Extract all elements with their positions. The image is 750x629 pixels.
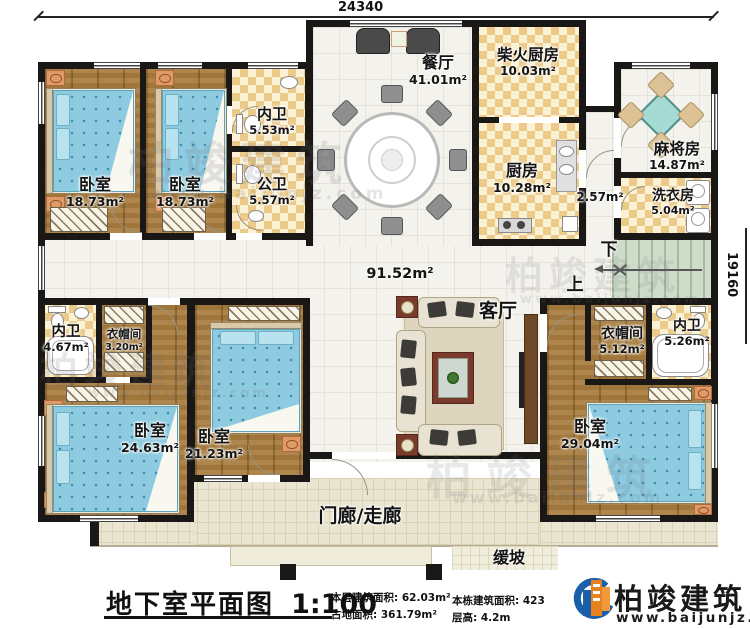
- stat-value: 423: [523, 595, 545, 607]
- bed-headboard: [210, 322, 302, 329]
- pillow: [258, 331, 294, 345]
- room-label-bath: 内卫 5.53m²: [240, 106, 304, 137]
- floor-plan: 柏竣建筑 www.baijunjz.com 柏竣建筑 www.baijunjz.…: [0, 0, 750, 629]
- nightstand: [694, 504, 712, 515]
- wardrobe: [228, 306, 300, 321]
- window: [80, 515, 138, 522]
- pillow: [56, 412, 70, 446]
- kitchen-sink: [559, 146, 574, 157]
- window: [596, 515, 660, 522]
- room-area: 10.28m²: [487, 181, 557, 196]
- logo: 柏竣建筑 www.baijunjz.com: [570, 574, 746, 629]
- door-gap: [579, 150, 586, 188]
- wall: [711, 240, 718, 298]
- pillow: [688, 452, 702, 490]
- dining-table-center: [381, 149, 403, 171]
- stat-row: 占地面积: 361.79m²: [331, 607, 451, 624]
- stat-value: 62.03m²: [402, 592, 451, 604]
- bed-headboard: [46, 404, 53, 514]
- nightstand: [155, 70, 174, 86]
- ramp-label: 缓坡: [486, 549, 532, 568]
- plant: [447, 372, 459, 384]
- room-name: 内卫: [656, 318, 718, 335]
- room-label-dining: 餐厅 41.01m²: [400, 54, 476, 88]
- dining-chair: [406, 28, 440, 54]
- room-name: 洗衣房: [638, 188, 708, 205]
- wall: [621, 172, 711, 178]
- room-area: 5.26m²: [656, 335, 718, 349]
- kitchen-cabinet: [562, 216, 578, 232]
- door-gap: [110, 233, 142, 240]
- room-name: 公卫: [240, 176, 304, 194]
- porch-label: 门廊/走廊: [300, 505, 420, 527]
- room-label-mahjong: 麻将房 14.87m²: [634, 140, 720, 172]
- stove-burner: [503, 221, 511, 229]
- corridor-area-label: 2.57m²: [570, 190, 630, 204]
- wall-stub: [479, 117, 499, 123]
- door-gap: [540, 314, 547, 352]
- wardrobe: [50, 207, 108, 232]
- room-area: 5.57m²: [240, 194, 304, 208]
- wall: [585, 379, 711, 385]
- stairs-text: 上: [564, 275, 586, 295]
- stove-burner: [517, 221, 525, 229]
- porch-column: [426, 564, 442, 580]
- toilet-tank: [690, 306, 706, 313]
- room-label-bath: 内卫 5.26m²: [656, 318, 718, 348]
- stats-col2: 本栋建筑面积: 423 层高: 4.2m: [452, 593, 545, 627]
- stairs-down-label: 下: [598, 240, 620, 260]
- stat-row: 本栋建筑面积: 423: [452, 593, 545, 610]
- room-name: 柴火厨房: [483, 46, 573, 64]
- stairs-text: 下: [598, 240, 620, 260]
- porch-column: [280, 564, 296, 580]
- room-name: 麻将房: [634, 140, 720, 158]
- room-name: 缓坡: [486, 549, 532, 568]
- tv-cabinet: [524, 314, 538, 444]
- room-label-bath: 公卫 5.57m²: [240, 176, 304, 207]
- pillow: [688, 410, 702, 448]
- nightstand: [282, 436, 301, 452]
- room-area: 4.67m²: [40, 341, 92, 355]
- tv: [519, 352, 524, 408]
- dim-right-line: [745, 228, 747, 344]
- watermark-site: www.baijunjz.com: [520, 292, 701, 307]
- room-area: 18.73m²: [55, 195, 135, 210]
- room-name: 卧室: [545, 418, 635, 437]
- wardrobe: [594, 360, 644, 377]
- stairs-up-label: 上: [564, 275, 586, 295]
- porch-strip-left: [90, 520, 194, 546]
- stat-value: 361.79m²: [381, 609, 437, 621]
- room-area: 5.04m²: [638, 205, 708, 218]
- sink: [248, 210, 264, 222]
- room-name: 厨房: [487, 162, 557, 181]
- door-gap: [248, 475, 280, 482]
- room-area: 2.57m²: [570, 190, 630, 204]
- stat-label: 占地面积:: [331, 609, 377, 621]
- window: [248, 62, 298, 69]
- room-name: 卧室: [145, 176, 225, 195]
- room-area: 5.12m²: [580, 343, 664, 357]
- door-gap: [236, 233, 262, 240]
- dim-top-text: 24340: [338, 0, 383, 15]
- door-gap: [614, 118, 621, 158]
- window: [711, 404, 718, 468]
- stat-row: 本层建筑面积: 62.03m²: [331, 590, 451, 607]
- dim-right-text: 19160: [724, 252, 739, 297]
- room-area: 91.52m²: [355, 266, 445, 283]
- pillow: [220, 331, 256, 345]
- nightstand: [46, 70, 65, 86]
- window: [38, 416, 45, 466]
- wardrobe: [648, 387, 692, 401]
- kitchen-sink: [559, 164, 574, 175]
- room-name: 卧室: [55, 176, 135, 195]
- toilet-tank: [48, 306, 66, 313]
- pillow: [56, 94, 70, 126]
- room-area: 18.73m²: [145, 195, 225, 210]
- room-label-laundry: 洗衣房 5.04m²: [638, 188, 708, 217]
- room-label-woodkitchen: 柴火厨房 10.03m²: [483, 46, 573, 78]
- pillow: [56, 128, 70, 160]
- dining-chair: [356, 28, 390, 54]
- porch-end-stub: [90, 520, 99, 546]
- wardrobe: [162, 207, 206, 232]
- room-label-bedroom: 卧室 21.23m²: [169, 428, 259, 462]
- wall-stub: [559, 117, 579, 123]
- room-area: 5.53m²: [240, 124, 304, 138]
- room-name: 门廊/走廊: [300, 505, 420, 527]
- stat-label: 本栋建筑面积:: [452, 595, 519, 607]
- window: [350, 20, 462, 27]
- window: [38, 246, 45, 290]
- hall-area-label: 91.52m²: [355, 266, 445, 283]
- door-gap: [194, 233, 226, 240]
- lamp: [401, 301, 414, 314]
- room-name: 内卫: [240, 106, 304, 124]
- pillow: [56, 450, 70, 484]
- window: [204, 475, 242, 482]
- porch-slab: [230, 546, 432, 566]
- room-label-cloak: 衣帽间 5.12m²: [580, 326, 664, 356]
- side-table: [391, 31, 407, 47]
- sofa-cushion: [427, 301, 447, 318]
- stat-label: 本层建筑面积:: [331, 592, 398, 604]
- room-label-kitchen: 厨房 10.28m²: [487, 162, 557, 196]
- dining-chair: [449, 149, 467, 171]
- room-name: 衣帽间: [580, 326, 664, 343]
- door-gap: [148, 298, 180, 305]
- dining-chair: [381, 217, 403, 235]
- window: [94, 62, 140, 69]
- room-name: 餐厅: [400, 54, 476, 73]
- wall: [586, 106, 614, 112]
- window: [632, 62, 690, 69]
- sofa-cushion: [400, 395, 417, 414]
- lamp: [401, 439, 414, 452]
- room-area: 41.01m²: [400, 73, 476, 88]
- bed-headboard: [705, 402, 712, 504]
- stat-value: 4.2m: [481, 612, 511, 624]
- bed-headboard: [46, 88, 53, 194]
- sofa-cushion: [400, 339, 417, 358]
- room-name: 内卫: [40, 324, 92, 341]
- watermark-site: www.baijunjz.com: [88, 386, 269, 401]
- room-label-bedroom: 卧室 18.73m²: [55, 176, 135, 210]
- logo-website: www.baijunjz.com: [616, 610, 750, 626]
- room-name: 卧室: [169, 428, 259, 447]
- sink: [280, 76, 298, 89]
- stat-row: 层高: 4.2m: [452, 610, 545, 627]
- window: [38, 82, 45, 124]
- wardrobe: [594, 306, 644, 321]
- sink: [74, 307, 89, 319]
- room-label-bath: 内卫 4.67m²: [40, 324, 92, 355]
- nightstand: [694, 386, 712, 400]
- watermark-site: www.baijunjz.com: [452, 488, 663, 507]
- logo-icon: [570, 576, 614, 629]
- window: [158, 62, 202, 69]
- room-label-bedroom: 卧室 18.73m²: [145, 176, 225, 210]
- porch-strip-right: [540, 520, 718, 546]
- room-area: 3.20m²: [98, 342, 150, 353]
- room-area: 10.03m²: [483, 64, 573, 78]
- door-gap: [332, 452, 396, 459]
- title-underline: [104, 616, 332, 619]
- room-area: 21.23m²: [169, 447, 259, 462]
- room-label-bedroom: 卧室 29.04m²: [545, 418, 635, 452]
- room-name: 衣帽间: [98, 328, 150, 342]
- stats-col1: 本层建筑面积: 62.03m² 占地面积: 361.79m²: [331, 590, 451, 624]
- dim-top-line: [38, 16, 714, 18]
- room-area: 29.04m²: [545, 437, 635, 452]
- sofa-cushion: [400, 367, 417, 386]
- stat-label: 层高:: [452, 612, 477, 624]
- room-name: 客厅: [468, 300, 528, 322]
- dining-chair: [381, 85, 403, 103]
- room-label-cloak: 衣帽间 3.20m²: [98, 328, 150, 353]
- door-arc: [332, 459, 368, 495]
- wardrobe: [104, 306, 144, 324]
- pillow: [165, 94, 179, 126]
- room-area: 14.87m²: [634, 158, 720, 172]
- living-room-label: 客厅: [468, 300, 528, 322]
